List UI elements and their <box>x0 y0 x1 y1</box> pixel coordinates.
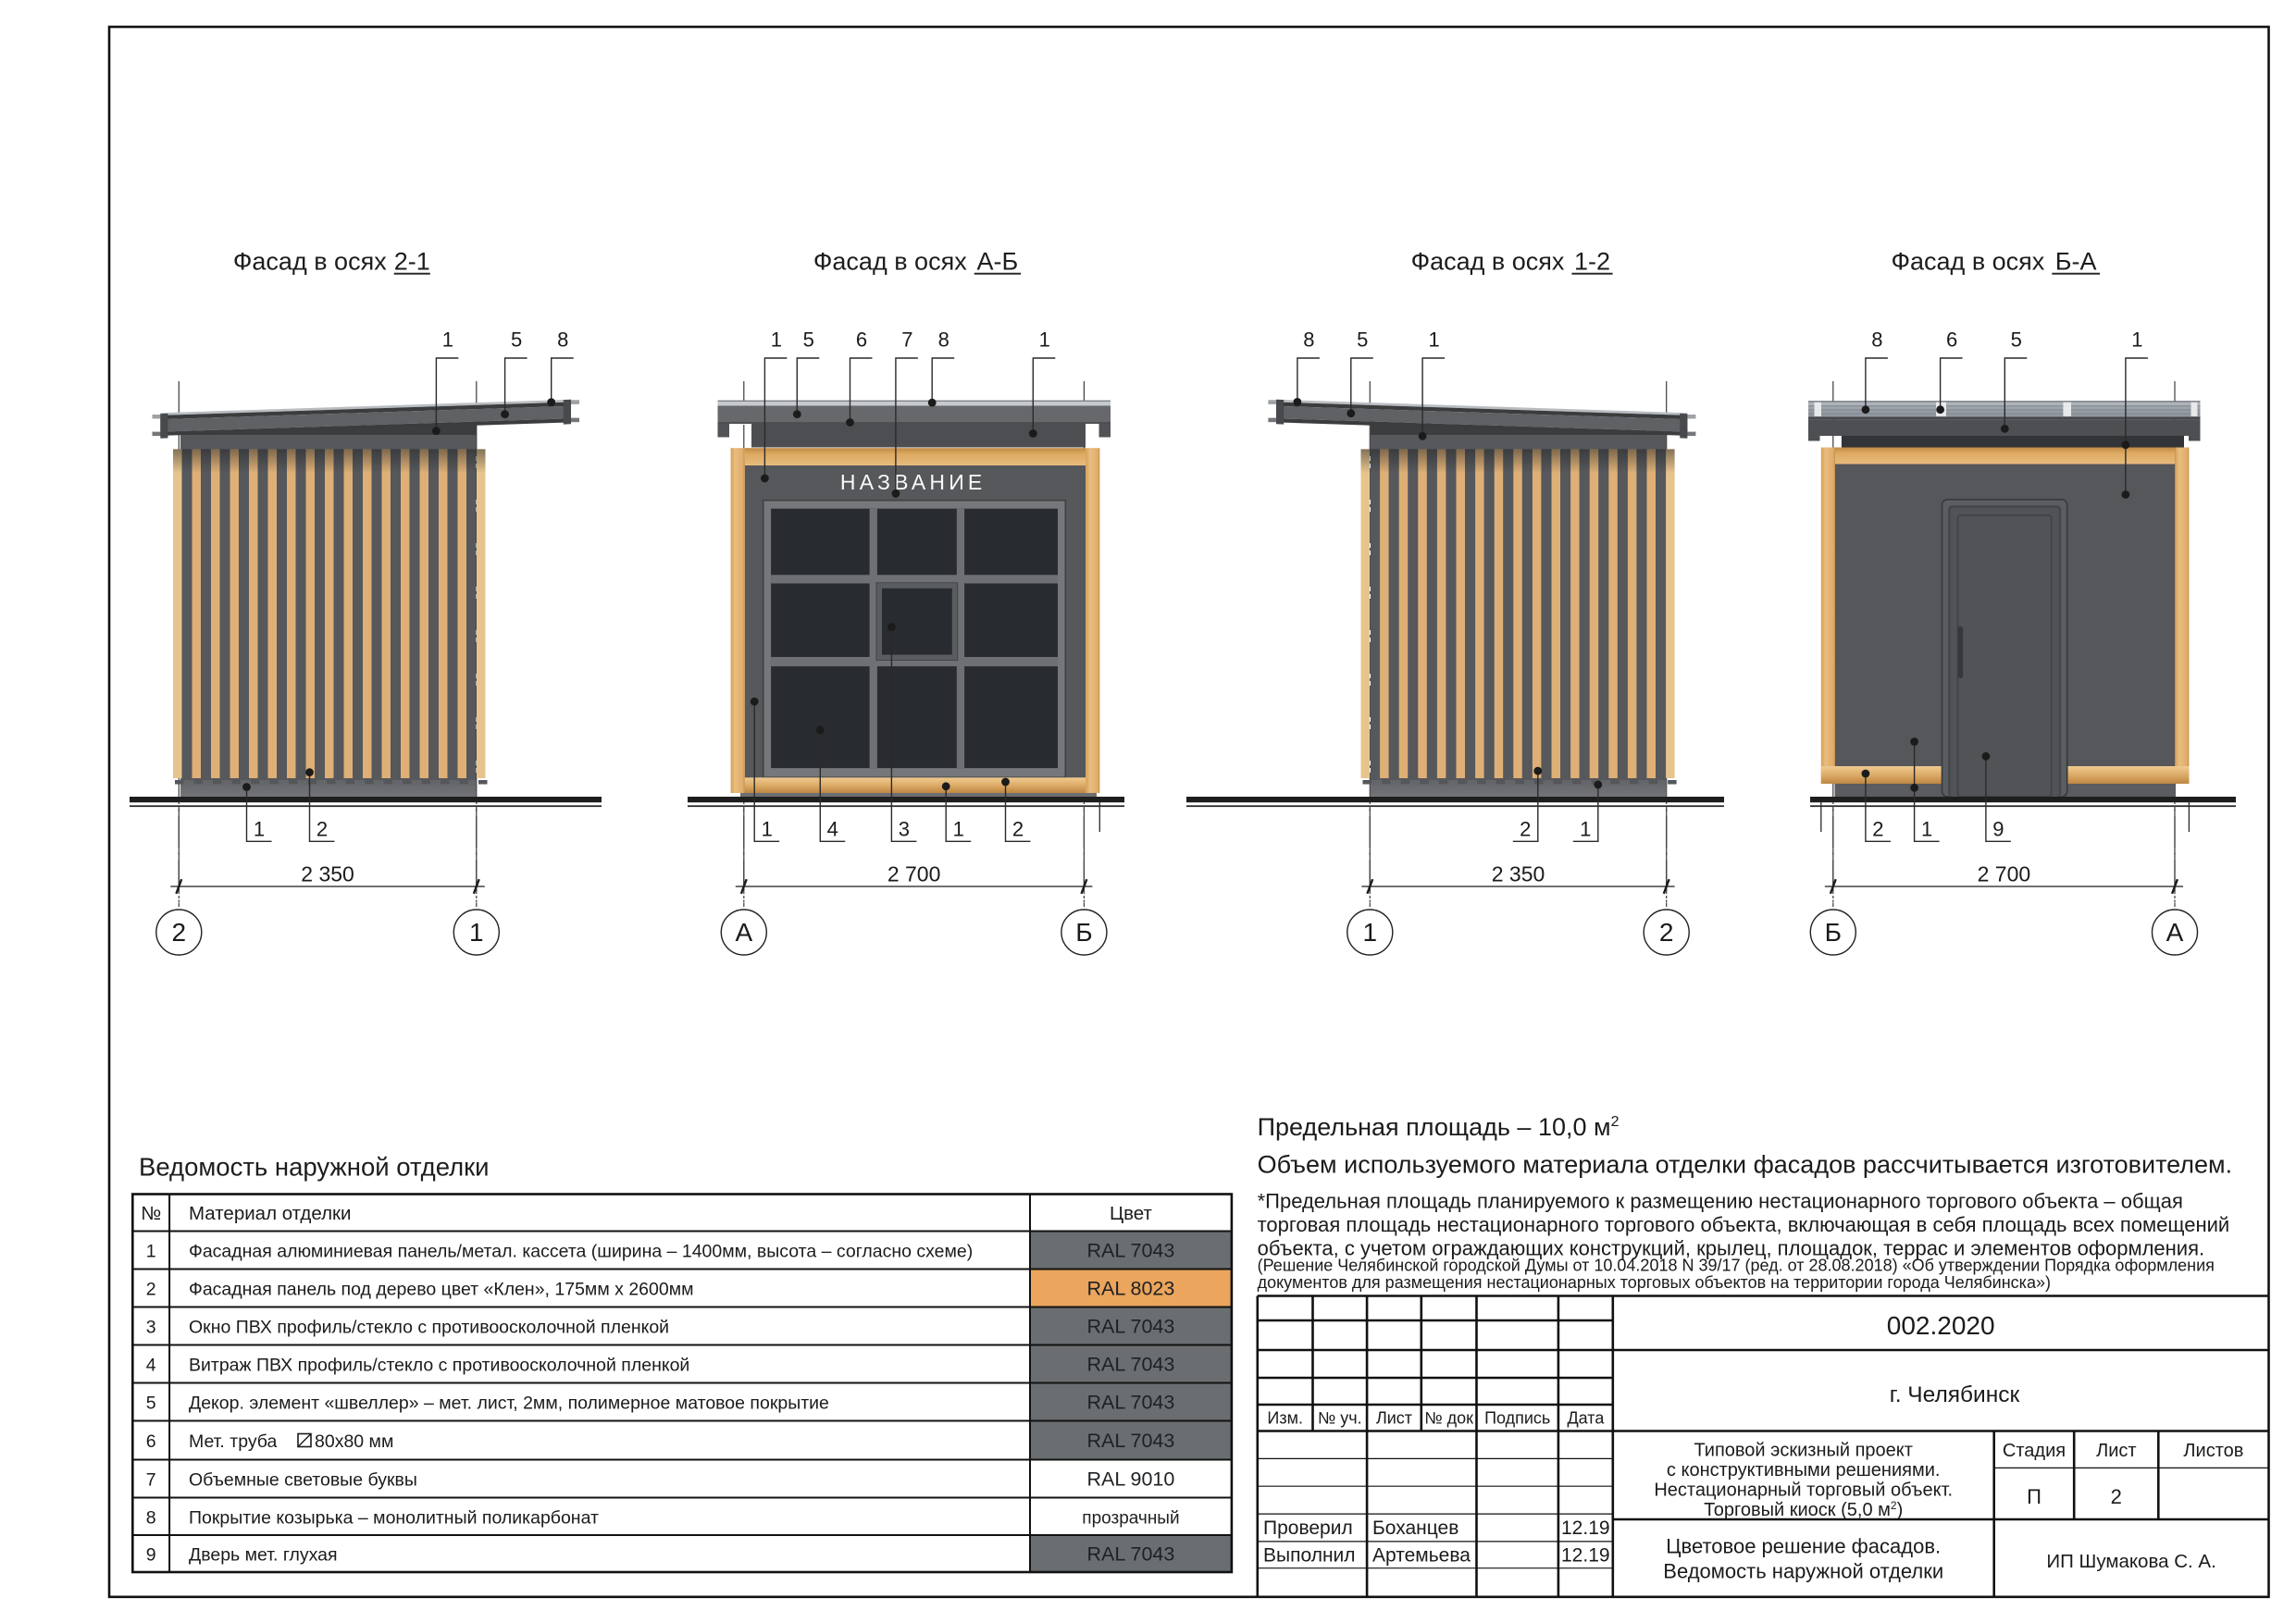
svg-text:1: 1 <box>442 328 453 352</box>
svg-text:1: 1 <box>1580 818 1591 841</box>
svg-text:12.19: 12.19 <box>1561 1518 1610 1539</box>
svg-text:торговая площадь нестационарно: торговая площадь нестационарного торгово… <box>1258 1213 2230 1236</box>
svg-text:8: 8 <box>1871 328 1882 352</box>
svg-text:1: 1 <box>1363 918 1378 947</box>
svg-text:8: 8 <box>146 1507 156 1528</box>
svg-text:г. Челябинск: г. Челябинск <box>1890 1382 2020 1407</box>
svg-text:№ док: № док <box>1424 1409 1473 1428</box>
svg-text:А: А <box>735 918 752 947</box>
svg-text:1: 1 <box>2131 328 2142 352</box>
svg-text:А: А <box>2166 918 2184 947</box>
svg-text:*Предельная площадь планируемо: *Предельная площадь планируемого к разме… <box>1258 1190 2183 1213</box>
svg-text:Фасад в осях: Фасад в осях <box>1411 248 1565 276</box>
svg-text:002.2020: 002.2020 <box>1887 1311 1995 1340</box>
svg-text:2: 2 <box>2111 1485 2122 1508</box>
svg-text:2: 2 <box>1520 818 1531 841</box>
svg-text:Декор. элемент «швеллер» – мет: Декор. элемент «швеллер» – мет. лист, 2м… <box>189 1394 829 1414</box>
svg-text:1: 1 <box>1428 328 1439 352</box>
svg-text:5: 5 <box>803 328 814 352</box>
svg-text:5: 5 <box>146 1394 156 1414</box>
svg-text:2-1: 2-1 <box>394 248 430 276</box>
svg-text:2: 2 <box>1012 818 1024 841</box>
svg-text:Б-А: Б-А <box>2055 248 2097 276</box>
svg-text:Витраж ПВХ профиль/стекло с пр: Витраж ПВХ профиль/стекло с противооскол… <box>189 1356 689 1376</box>
svg-text:Мет. труба: Мет. труба <box>189 1431 278 1452</box>
svg-text:Покрытие козырька – монолитный: Покрытие козырька – монолитный поликарбо… <box>189 1507 599 1528</box>
svg-text:2: 2 <box>1872 818 1883 841</box>
svg-text:5: 5 <box>2011 328 2022 352</box>
svg-text:RAL 7043: RAL 7043 <box>1087 1354 1175 1376</box>
svg-text:Дверь мет. глухая: Дверь мет. глухая <box>189 1545 338 1566</box>
svg-text:Материал отделки: Материал отделки <box>189 1203 351 1224</box>
svg-text:1: 1 <box>1921 818 1932 841</box>
svg-text:Объемные световые буквы: Объемные световые буквы <box>189 1470 417 1491</box>
svg-text:12.19: 12.19 <box>1561 1545 1610 1567</box>
svg-text:RAL 8023: RAL 8023 <box>1087 1278 1175 1300</box>
svg-text:1: 1 <box>771 328 782 352</box>
svg-text:7: 7 <box>146 1470 156 1491</box>
svg-text:Б: Б <box>1075 918 1092 947</box>
svg-text:1: 1 <box>1039 328 1050 352</box>
svg-text:прозрачный: прозрачный <box>1082 1508 1179 1528</box>
svg-text:RAL 7043: RAL 7043 <box>1087 1240 1175 1262</box>
svg-text:6: 6 <box>1946 328 1957 352</box>
svg-text:4: 4 <box>827 818 838 841</box>
svg-text:Предельная площадь – 10,0 м2: Предельная площадь – 10,0 м2 <box>1258 1113 1620 1141</box>
svg-text:Цветовое решение фасадов.: Цветовое решение фасадов. <box>1666 1535 1941 1558</box>
svg-text:Лист: Лист <box>2096 1441 2136 1461</box>
svg-text:8: 8 <box>557 328 568 352</box>
svg-text:RAL 7043: RAL 7043 <box>1087 1430 1175 1452</box>
svg-text:Типовой эскизный проект: Типовой эскизный проект <box>1694 1441 1913 1461</box>
svg-text:2: 2 <box>1659 918 1674 947</box>
svg-text:Выполнил: Выполнил <box>1263 1545 1356 1567</box>
svg-text:Проверил: Проверил <box>1263 1518 1353 1539</box>
svg-text:Фасадная алюминиевая панель/ме: Фасадная алюминиевая панель/метал. кассе… <box>189 1242 973 1262</box>
svg-text:9: 9 <box>146 1545 156 1566</box>
svg-text:1-2: 1-2 <box>1574 248 1610 276</box>
svg-text:Боханцев: Боханцев <box>1372 1518 1458 1539</box>
svg-text:Ведомость наружной отделки: Ведомость наружной отделки <box>139 1153 490 1182</box>
svg-text:№ уч.: № уч. <box>1318 1409 1362 1428</box>
svg-text:RAL 9010: RAL 9010 <box>1087 1468 1175 1491</box>
svg-text:Изм.: Изм. <box>1267 1409 1303 1428</box>
svg-text:4: 4 <box>146 1356 156 1376</box>
svg-text:3: 3 <box>146 1318 156 1338</box>
svg-text:Лист: Лист <box>1376 1409 1412 1428</box>
svg-text:2 700: 2 700 <box>1978 862 2031 886</box>
svg-text:6: 6 <box>856 328 867 352</box>
svg-text:5: 5 <box>511 328 522 352</box>
svg-text:1: 1 <box>254 818 265 841</box>
svg-text:Объем используемого материала: Объем используемого материала отделки фа… <box>1258 1151 2233 1179</box>
svg-text:документов для размещения нест: документов для размещения нестационарных… <box>1258 1273 2051 1292</box>
svg-text:RAL 7043: RAL 7043 <box>1087 1543 1175 1566</box>
svg-text:2: 2 <box>172 918 187 947</box>
svg-text:Цвет: Цвет <box>1110 1203 1153 1224</box>
svg-text:(Решение Челябинской городской: (Решение Челябинской городской Думы от 1… <box>1258 1257 2215 1275</box>
svg-text:2 700: 2 700 <box>887 862 941 886</box>
svg-text:8: 8 <box>938 328 949 352</box>
svg-text:НАЗВАНИЕ: НАЗВАНИЕ <box>840 470 987 494</box>
svg-text:8: 8 <box>1303 328 1314 352</box>
svg-text:1: 1 <box>146 1242 156 1262</box>
svg-text:Фасадная панель под дерево цве: Фасадная панель под дерево цвет «Клен», … <box>189 1280 694 1300</box>
svg-text:2: 2 <box>146 1280 156 1300</box>
svg-text:80x80 мм: 80x80 мм <box>315 1431 393 1452</box>
svg-text:1: 1 <box>953 818 964 841</box>
svg-text:Б: Б <box>1825 918 1842 947</box>
svg-text:Листов: Листов <box>2183 1441 2243 1461</box>
svg-text:с конструктивными решениями.: с конструктивными решениями. <box>1667 1460 1941 1481</box>
svg-text:6: 6 <box>146 1431 156 1452</box>
svg-text:5: 5 <box>1357 328 1368 352</box>
svg-text:Фасад в осях: Фасад в осях <box>233 248 387 276</box>
svg-text:П: П <box>2027 1485 2042 1508</box>
svg-text:RAL 7043: RAL 7043 <box>1087 1392 1175 1414</box>
svg-text:Фасад в осях: Фасад в осях <box>1892 248 2045 276</box>
svg-text:RAL 7043: RAL 7043 <box>1087 1316 1175 1338</box>
svg-text:Стадия: Стадия <box>2003 1441 2066 1461</box>
svg-text:Ведомость наружной отделки: Ведомость наружной отделки <box>1663 1560 1943 1583</box>
svg-text:А-Б: А-Б <box>977 248 1019 276</box>
svg-text:9: 9 <box>1992 818 2004 841</box>
svg-text:Окно ПВХ профиль/стекло с прот: Окно ПВХ профиль/стекло с противоосколоч… <box>189 1318 669 1338</box>
svg-text:ИП Шумакова С. А.: ИП Шумакова С. А. <box>2046 1551 2215 1572</box>
svg-text:Нестационарный торговый объект: Нестационарный торговый объект. <box>1654 1481 1953 1501</box>
svg-text:Подпись: Подпись <box>1484 1409 1550 1428</box>
svg-text:2 350: 2 350 <box>301 862 354 886</box>
svg-text:1: 1 <box>469 918 484 947</box>
svg-text:3: 3 <box>899 818 910 841</box>
svg-text:7: 7 <box>901 328 912 352</box>
svg-text:Артемьева: Артемьева <box>1372 1545 1471 1567</box>
svg-text:Дата: Дата <box>1567 1409 1605 1428</box>
svg-text:№: № <box>141 1203 161 1224</box>
svg-text:1: 1 <box>762 818 773 841</box>
svg-text:2: 2 <box>316 818 328 841</box>
svg-text:Торговый киоск (5,0 м2): Торговый киоск (5,0 м2) <box>1704 1499 1903 1520</box>
svg-text:Фасад в осях: Фасад в осях <box>813 248 967 276</box>
svg-text:2 350: 2 350 <box>1492 862 1545 886</box>
